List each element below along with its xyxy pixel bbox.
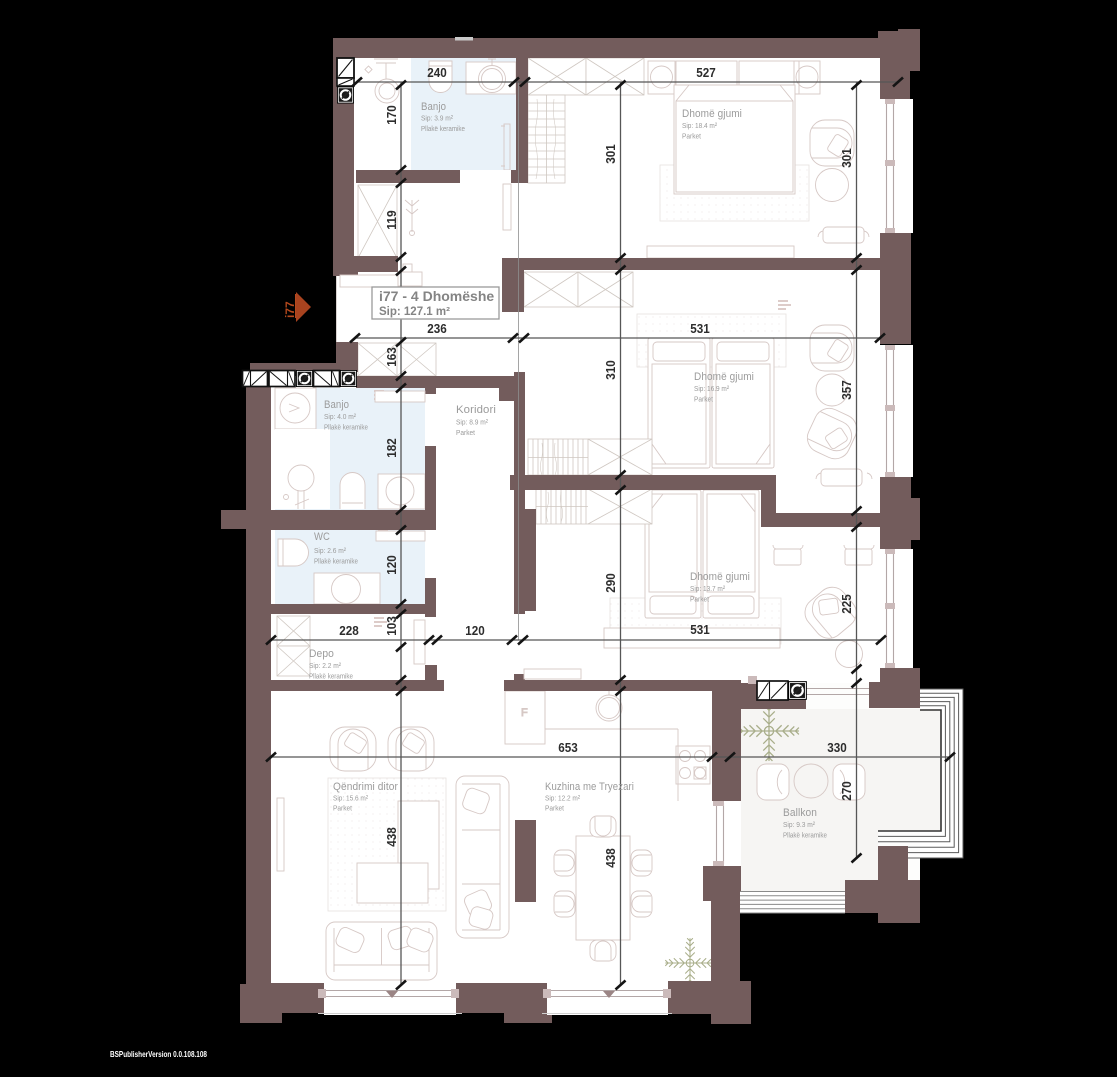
svg-text:531: 531 bbox=[690, 622, 710, 637]
svg-text:270: 270 bbox=[839, 781, 854, 801]
svg-text:Kuzhina me Tryezari: Kuzhina me Tryezari bbox=[545, 781, 634, 793]
svg-text:Parket: Parket bbox=[690, 595, 710, 604]
svg-text:Sip: 9.3 m²: Sip: 9.3 m² bbox=[783, 820, 815, 829]
svg-text:225: 225 bbox=[839, 594, 854, 614]
svg-text:Koridori: Koridori bbox=[456, 404, 496, 416]
svg-text:301: 301 bbox=[839, 148, 854, 168]
svg-text:i77: i77 bbox=[283, 301, 297, 318]
svg-text:Dhomë gjumi: Dhomë gjumi bbox=[694, 371, 754, 383]
svg-text:120: 120 bbox=[384, 555, 399, 575]
svg-text:Pllakë keramike: Pllakë keramike bbox=[421, 124, 465, 133]
svg-text:163: 163 bbox=[384, 347, 399, 367]
svg-text:Pllakë keramike: Pllakë keramike bbox=[314, 557, 358, 566]
svg-text:BSPublisherVersion 0.0.108.108: BSPublisherVersion 0.0.108.108 bbox=[110, 1049, 207, 1059]
svg-text:170: 170 bbox=[384, 105, 399, 125]
svg-text:Sip: 18.4 m²: Sip: 18.4 m² bbox=[682, 121, 717, 130]
svg-text:Pllakë keramike: Pllakë keramike bbox=[324, 423, 368, 432]
svg-text:F: F bbox=[521, 707, 528, 719]
svg-text:301: 301 bbox=[603, 144, 618, 164]
svg-text:Qëndrimi ditor: Qëndrimi ditor bbox=[333, 781, 398, 793]
svg-text:228: 228 bbox=[339, 623, 359, 638]
svg-text:Sip: 13.7 m²: Sip: 13.7 m² bbox=[690, 584, 725, 593]
svg-text:WC: WC bbox=[314, 531, 330, 543]
svg-text:Banjo: Banjo bbox=[324, 399, 349, 411]
svg-text:Ballkon: Ballkon bbox=[783, 807, 817, 819]
svg-text:i77 - 4 Dhomëshe: i77 - 4 Dhomëshe bbox=[379, 288, 494, 304]
svg-text:103: 103 bbox=[384, 616, 399, 636]
svg-text:Sip: 4.0 m²: Sip: 4.0 m² bbox=[324, 412, 356, 421]
svg-text:290: 290 bbox=[603, 573, 618, 593]
svg-text:653: 653 bbox=[558, 740, 578, 755]
svg-text:Sip: 2.2 m²: Sip: 2.2 m² bbox=[309, 661, 341, 670]
svg-text:Sip: 15.6 m²: Sip: 15.6 m² bbox=[333, 794, 368, 803]
svg-text:240: 240 bbox=[427, 65, 447, 80]
svg-text:310: 310 bbox=[603, 360, 618, 380]
svg-text:Sip: 127.1 m²: Sip: 127.1 m² bbox=[379, 306, 450, 318]
svg-text:438: 438 bbox=[603, 848, 618, 868]
svg-text:Parket: Parket bbox=[333, 804, 353, 813]
svg-text:Dhomë gjumi: Dhomë gjumi bbox=[682, 108, 742, 120]
svg-text:Dhomë gjumi: Dhomë gjumi bbox=[690, 571, 750, 583]
svg-text:531: 531 bbox=[690, 321, 710, 336]
svg-text:182: 182 bbox=[384, 438, 399, 458]
svg-text:438: 438 bbox=[384, 827, 399, 847]
svg-text:357: 357 bbox=[839, 380, 854, 400]
svg-text:Parket: Parket bbox=[456, 428, 476, 437]
svg-text:Parket: Parket bbox=[545, 804, 565, 813]
svg-text:Sip: 2.6 m²: Sip: 2.6 m² bbox=[314, 546, 346, 555]
svg-text:Sip: 3.9 m²: Sip: 3.9 m² bbox=[421, 114, 453, 123]
svg-text:330: 330 bbox=[827, 740, 847, 755]
svg-text:Pllakë keramike: Pllakë keramike bbox=[309, 672, 353, 681]
svg-text:Sip: 16.9 m²: Sip: 16.9 m² bbox=[694, 384, 729, 393]
svg-text:Banjo: Banjo bbox=[421, 101, 446, 113]
svg-text:236: 236 bbox=[427, 321, 447, 336]
svg-text:Sip: 8.9 m²: Sip: 8.9 m² bbox=[456, 418, 488, 427]
svg-text:Depo: Depo bbox=[309, 648, 334, 660]
svg-text:120: 120 bbox=[465, 623, 485, 638]
svg-text:527: 527 bbox=[696, 65, 716, 80]
svg-text:Parket: Parket bbox=[682, 132, 702, 141]
svg-text:Pllakë keramike: Pllakë keramike bbox=[783, 831, 827, 840]
svg-text:119: 119 bbox=[384, 210, 399, 230]
svg-text:Parket: Parket bbox=[694, 395, 714, 404]
svg-text:Sip: 12.2 m²: Sip: 12.2 m² bbox=[545, 794, 580, 803]
